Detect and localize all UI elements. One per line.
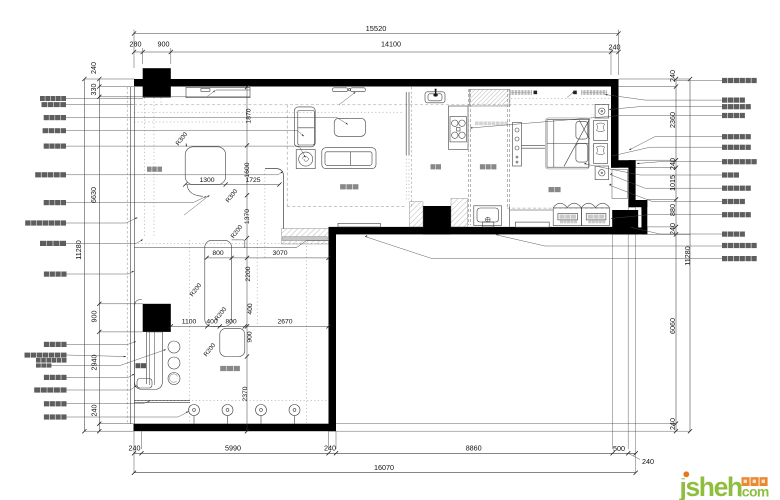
svg-text:240: 240 xyxy=(90,405,99,417)
svg-text:330: 330 xyxy=(89,84,98,96)
svg-text:1300: 1300 xyxy=(199,177,214,184)
svg-text:1870: 1870 xyxy=(245,108,252,123)
svg-text:6060: 6060 xyxy=(668,318,677,334)
svg-text:1370: 1370 xyxy=(244,209,251,224)
svg-text:800: 800 xyxy=(225,319,237,326)
svg-text:240: 240 xyxy=(668,70,677,82)
svg-text:6630: 6630 xyxy=(89,187,98,203)
svg-text:1600: 1600 xyxy=(244,162,251,177)
svg-text:11280: 11280 xyxy=(683,246,692,265)
svg-text:1015: 1015 xyxy=(668,175,677,191)
svg-text:880: 880 xyxy=(668,204,677,216)
svg-text:1100: 1100 xyxy=(182,319,197,326)
svg-text:400: 400 xyxy=(247,303,254,315)
svg-text:500: 500 xyxy=(613,444,625,453)
svg-text:240: 240 xyxy=(668,418,677,430)
svg-text:15520: 15520 xyxy=(366,24,387,33)
svg-text:8860: 8860 xyxy=(466,444,482,453)
svg-text:2200: 2200 xyxy=(245,266,252,281)
svg-text:5990: 5990 xyxy=(225,444,241,453)
svg-text:240: 240 xyxy=(609,43,621,52)
svg-text:900: 900 xyxy=(90,311,99,323)
svg-text:3070: 3070 xyxy=(272,250,287,257)
svg-text:240: 240 xyxy=(89,62,98,74)
svg-text:.com: .com xyxy=(739,484,769,500)
svg-text:280: 280 xyxy=(130,40,142,49)
svg-text:800: 800 xyxy=(212,250,224,257)
svg-text:900: 900 xyxy=(158,40,170,49)
svg-text:240: 240 xyxy=(129,444,141,453)
svg-text:2360: 2360 xyxy=(668,112,677,128)
svg-text:900: 900 xyxy=(246,331,253,343)
svg-text:16070: 16070 xyxy=(374,463,394,472)
svg-text:2940: 2940 xyxy=(90,355,99,371)
svg-text:240: 240 xyxy=(668,158,677,170)
svg-text:14100: 14100 xyxy=(381,40,401,49)
svg-text:2370: 2370 xyxy=(242,386,249,401)
svg-text:240: 240 xyxy=(642,457,654,466)
svg-text:240: 240 xyxy=(668,223,677,235)
svg-text:2670: 2670 xyxy=(277,319,292,326)
svg-text:240: 240 xyxy=(324,444,336,453)
